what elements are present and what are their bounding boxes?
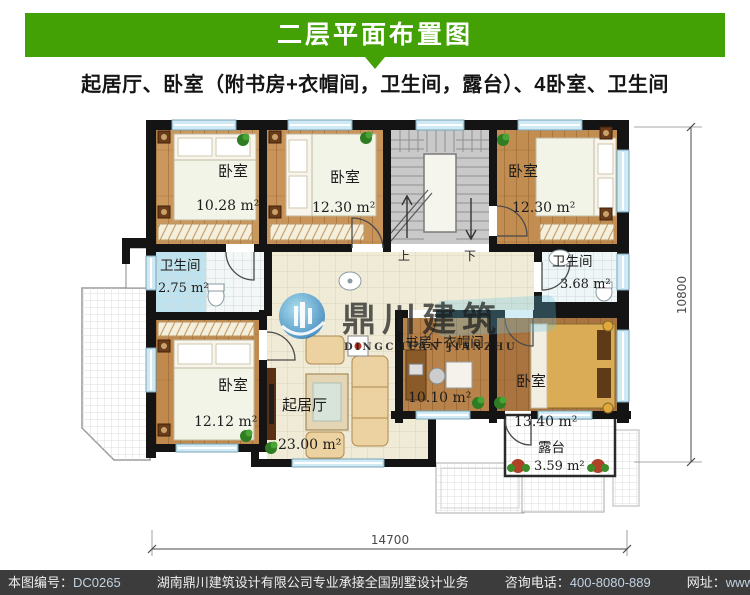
cabinet	[446, 362, 472, 388]
wall	[264, 248, 272, 316]
stair-landing	[424, 154, 456, 232]
footer-site-value: www.bstzcs.com	[726, 570, 750, 595]
chair	[429, 368, 445, 384]
room-label: 卫生间	[552, 254, 593, 270]
footer-phone-value: 400-8080-889	[570, 570, 651, 595]
wall	[259, 122, 267, 252]
wall	[534, 248, 542, 262]
footer-bar: 本图编号：DC0265 湖南鼎川建筑设计有限公司专业承接全国别墅设计业务 咨询电…	[0, 570, 750, 595]
bed-master	[531, 321, 615, 413]
window	[518, 120, 582, 130]
wall	[428, 419, 436, 467]
window	[172, 120, 236, 130]
stairs-up-label: 上	[398, 249, 410, 263]
room-area: 12.12 m²	[194, 414, 257, 430]
stairs-down-label: 下	[464, 249, 476, 263]
window	[146, 348, 156, 392]
room-label: 露台	[538, 440, 565, 456]
window	[617, 150, 629, 212]
room-label: 卧室	[218, 376, 248, 394]
footer-company: 湖南鼎川建筑设计有限公司专业承接全国别墅设计业务	[157, 570, 469, 595]
wall	[489, 122, 497, 206]
room-label: 卧室	[218, 162, 248, 180]
room-area: 3.68 m²	[560, 277, 611, 292]
wall	[122, 238, 130, 264]
room-area: 2.75 m²	[158, 281, 209, 296]
room-label: 卧室	[508, 162, 538, 180]
window	[292, 459, 384, 467]
room-area: 13.40 m²	[514, 414, 577, 430]
room-area: 12.30 m²	[312, 200, 375, 216]
room-area: 10.28 m²	[196, 198, 259, 214]
window	[176, 444, 238, 452]
wall	[383, 122, 391, 252]
dimension-height: 10800	[675, 276, 689, 314]
wall	[146, 312, 267, 320]
room-label: 卧室	[516, 372, 546, 390]
window	[146, 256, 156, 290]
footer-no-label: 本图编号：	[0, 570, 73, 595]
room-label: 卫生间	[160, 258, 201, 274]
room-label: 卧室	[330, 168, 360, 186]
room-label: 起居厅	[282, 396, 327, 414]
wall	[259, 360, 267, 452]
sofa	[352, 356, 388, 446]
window	[416, 120, 464, 130]
window	[288, 120, 352, 130]
room-area: 23.00 m²	[278, 437, 341, 453]
room-label: 书房+衣帽间	[405, 335, 484, 351]
sofa	[306, 336, 344, 364]
footer-site-label: 网址：	[687, 570, 726, 595]
footer-no-value: DC0265	[73, 570, 121, 595]
dimension-width: 14700	[371, 533, 409, 547]
room-area: 10.10 m²	[408, 390, 471, 406]
wall	[146, 244, 226, 252]
window	[617, 330, 629, 402]
wall	[259, 310, 267, 330]
footer-phone-label: 咨询电话：	[505, 570, 570, 595]
room-area: 3.59 m²	[534, 459, 585, 474]
window	[416, 411, 470, 419]
room-area: 12.30 m²	[512, 200, 575, 216]
floor-plan: 鼎川建筑 DINGCHUAN JIANZHU 卧室 10.28 m² 卧室 12…	[0, 0, 750, 595]
window	[617, 254, 629, 290]
watermark-cn: 鼎川建筑	[342, 300, 502, 340]
